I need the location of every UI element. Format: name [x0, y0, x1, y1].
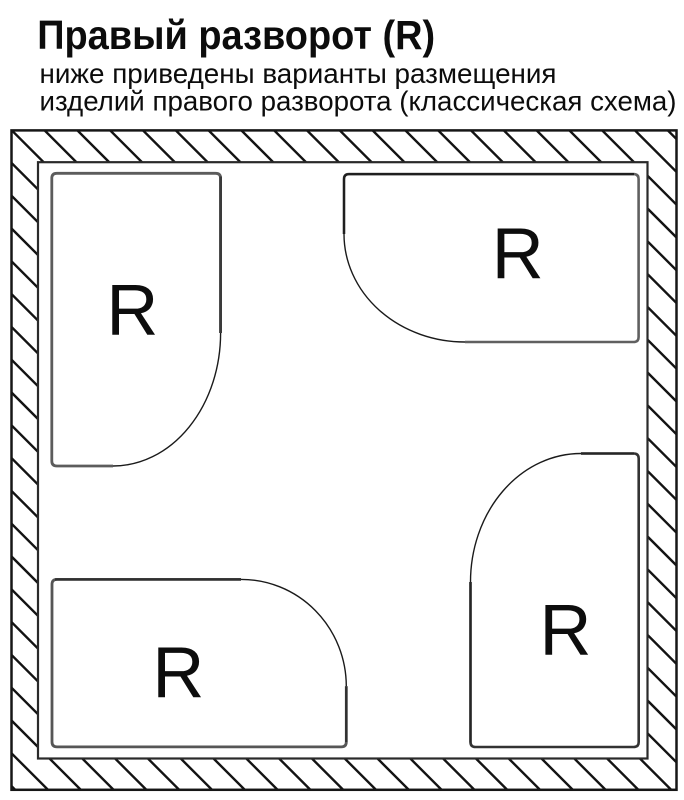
svg-text:Правый разворот (R): Правый разворот (R)	[37, 12, 435, 58]
svg-text:R: R	[152, 633, 204, 713]
svg-text:R: R	[492, 214, 544, 294]
svg-text:R: R	[106, 270, 158, 350]
svg-text:R: R	[540, 591, 592, 671]
svg-text:изделий правого разворота (кла: изделий правого разворота (классическая …	[40, 85, 677, 116]
